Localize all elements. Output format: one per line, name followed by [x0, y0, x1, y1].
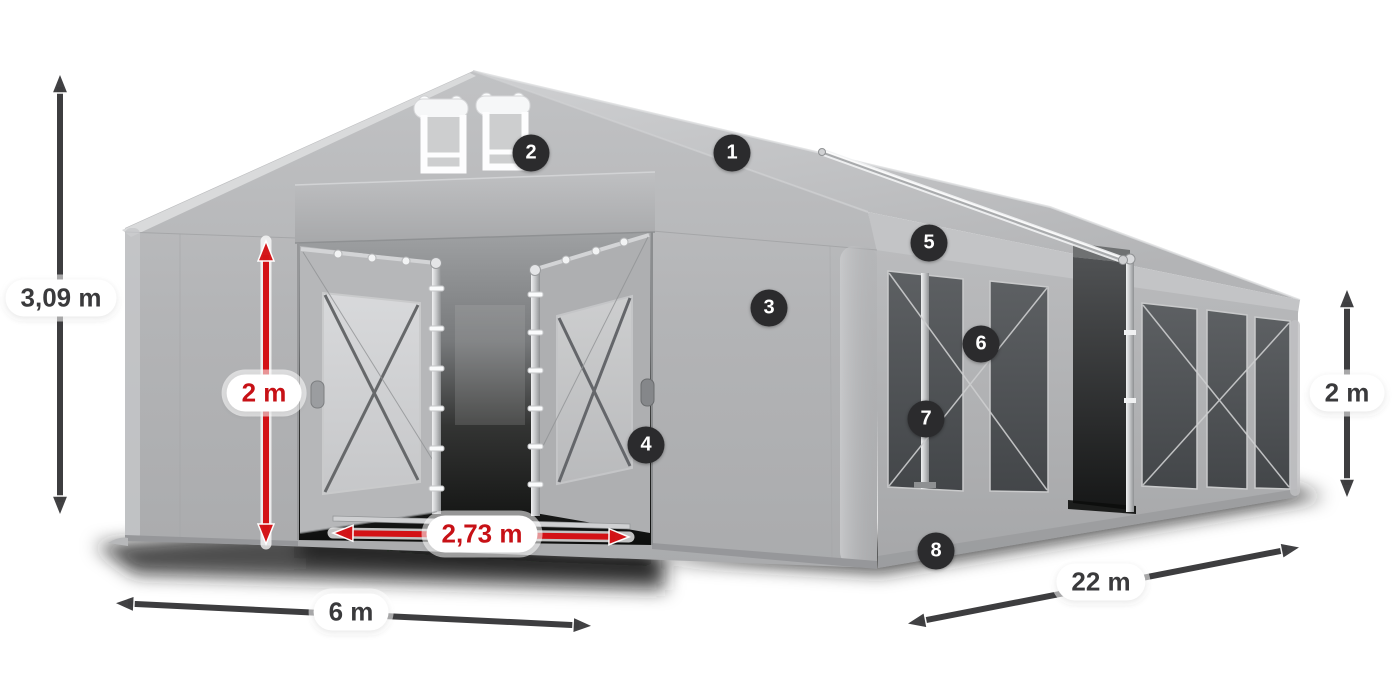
part-marker-2[interactable]: 2: [513, 135, 550, 172]
dimension-arrows-layer: [0, 0, 1400, 700]
tent-dimension-diagram: 3,09 m2 m2,73 m6 m22 m2 m12345678: [0, 0, 1400, 700]
part-marker-3[interactable]: 3: [751, 290, 788, 327]
dimension-label-door-height: 2 m: [227, 375, 302, 412]
dimension-label-side-height: 2 m: [1310, 375, 1385, 412]
part-marker-7[interactable]: 7: [908, 401, 945, 438]
part-marker-6[interactable]: 6: [963, 326, 1000, 363]
dimension-label-length: 22 m: [1056, 564, 1145, 601]
part-marker-4[interactable]: 4: [628, 427, 665, 464]
dimension-label-total-height: 3,09 m: [6, 280, 117, 317]
dimension-label-door-width: 2,73 m: [427, 516, 538, 553]
dimension-label-front-width: 6 m: [314, 594, 389, 631]
part-marker-5[interactable]: 5: [911, 225, 948, 262]
part-marker-1[interactable]: 1: [714, 135, 751, 172]
part-marker-8[interactable]: 8: [918, 533, 955, 570]
